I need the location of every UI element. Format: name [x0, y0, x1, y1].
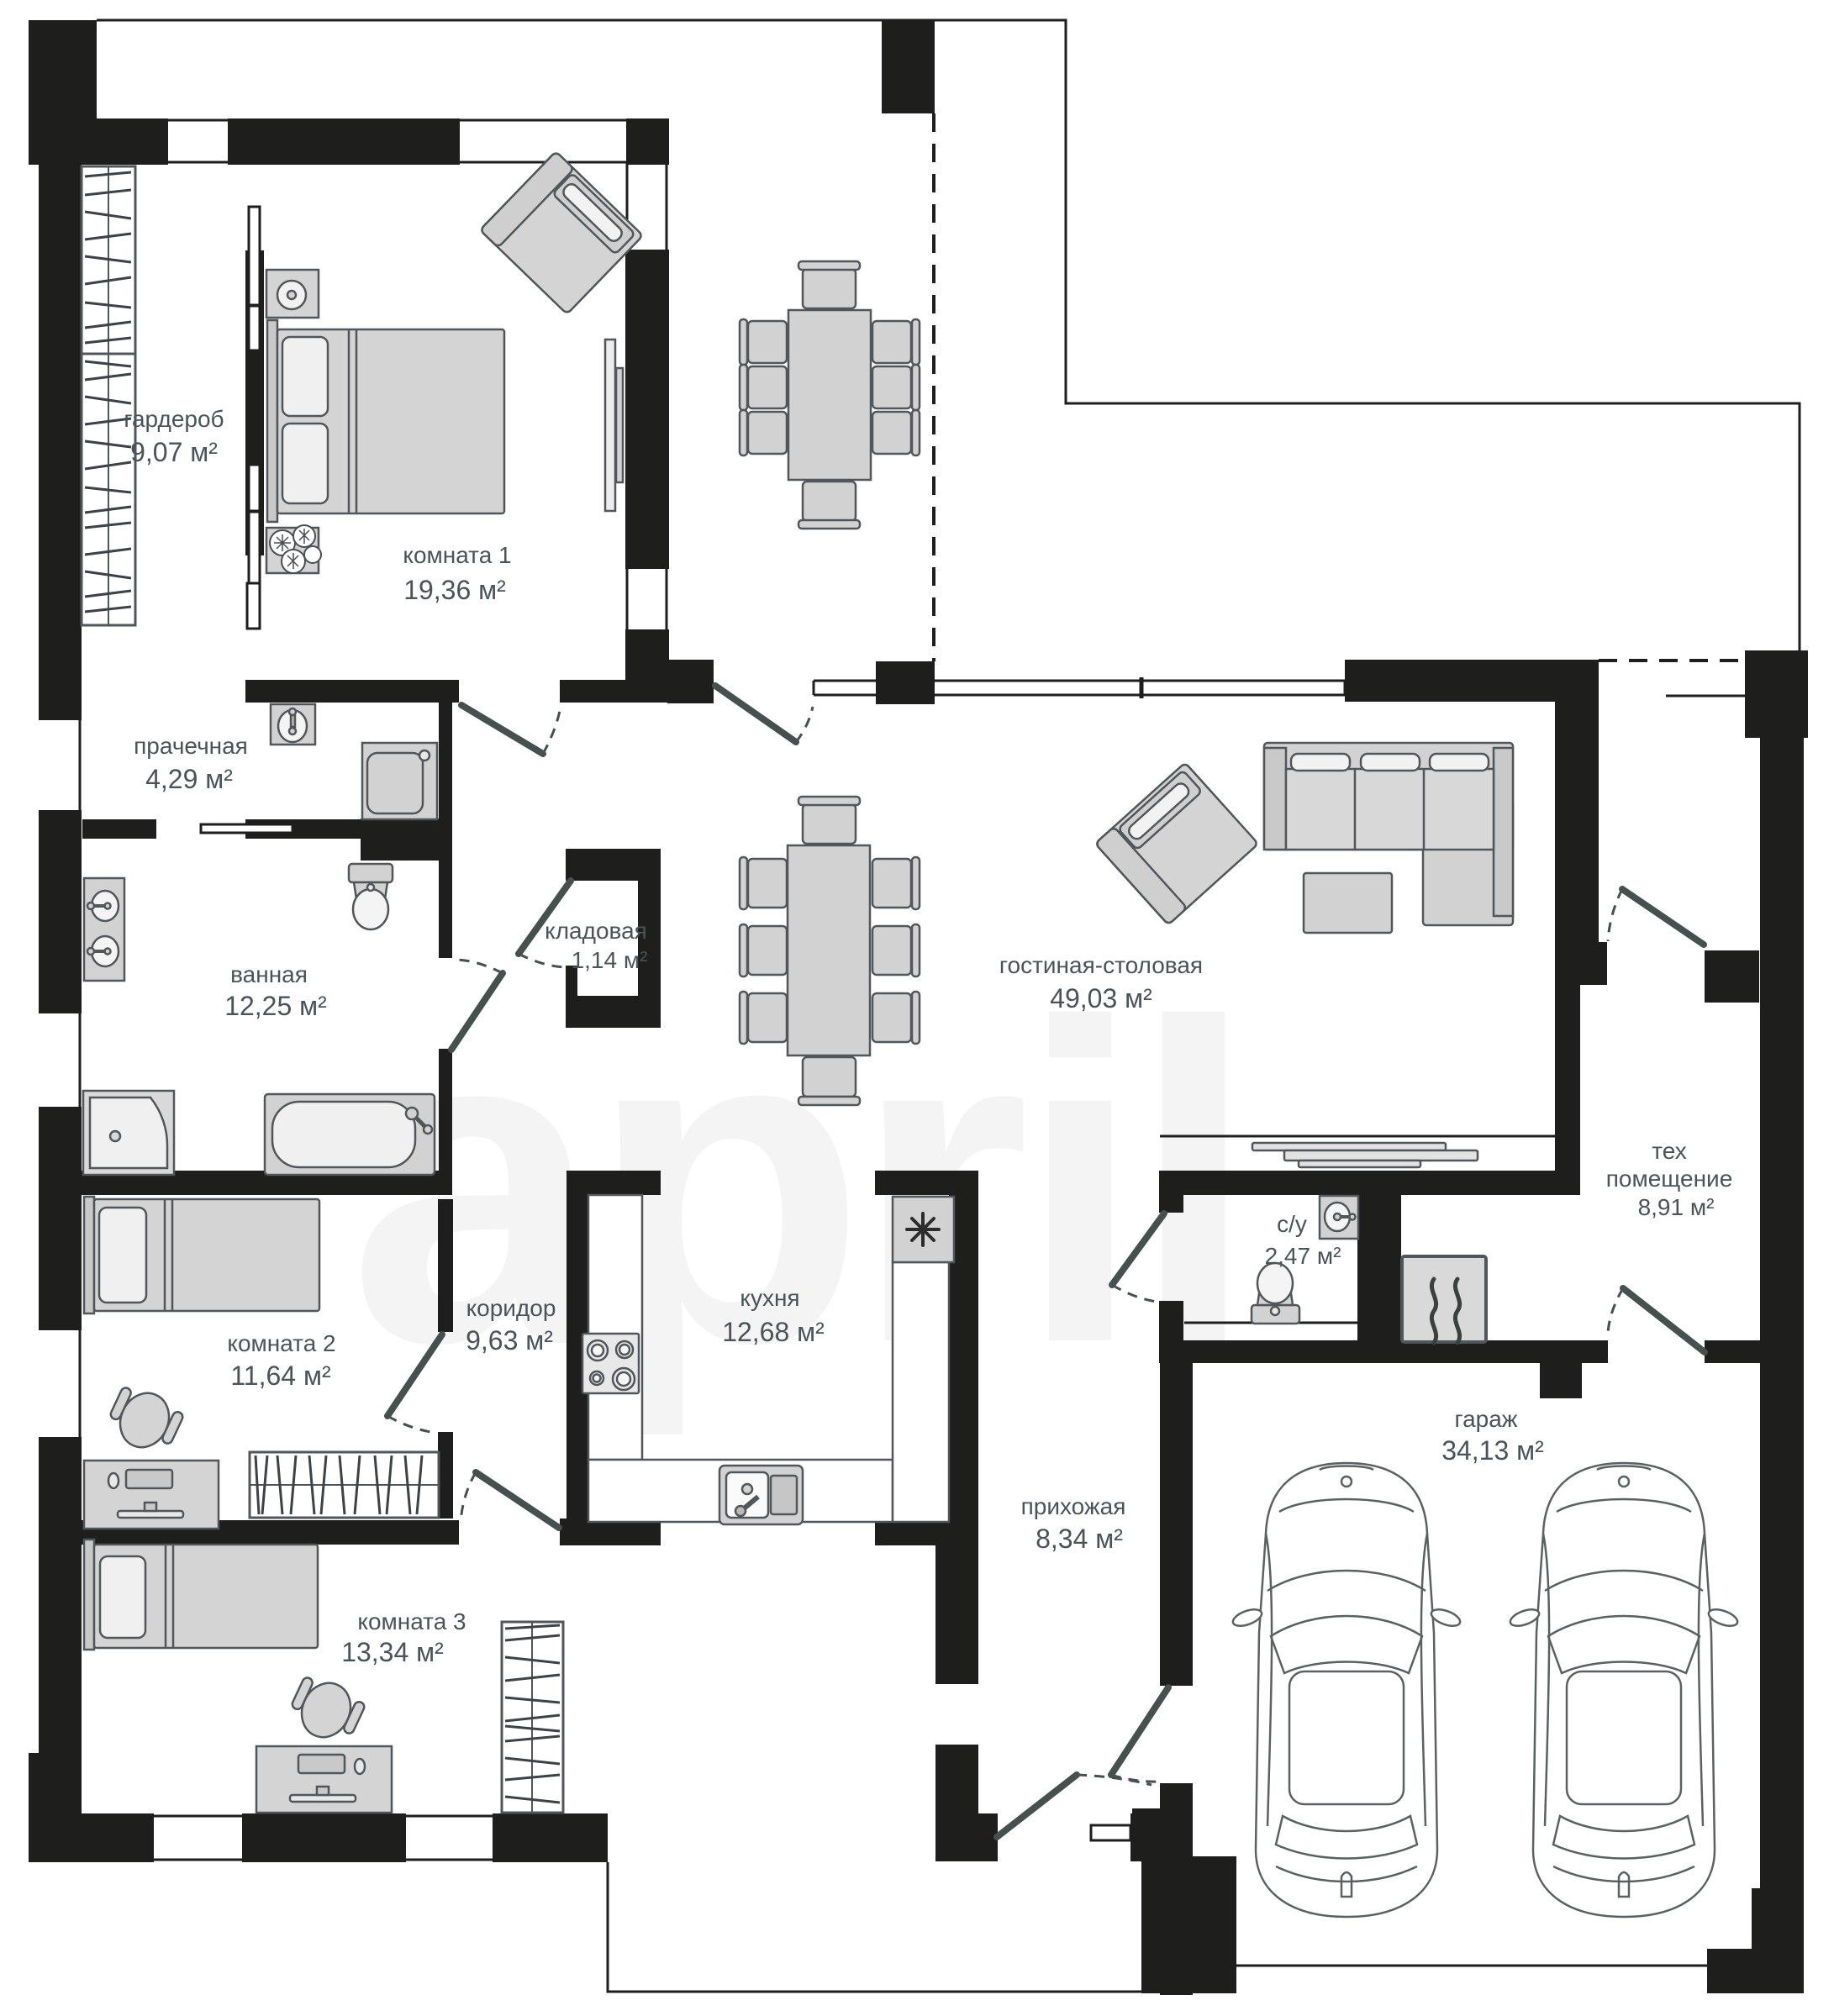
- svg-text:12,68 м²: 12,68 м²: [722, 1317, 825, 1347]
- svg-text:19,36 м²: 19,36 м²: [403, 575, 506, 605]
- svg-text:ванная: ванная: [230, 961, 308, 987]
- svg-text:2,47 м²: 2,47 м²: [1265, 1243, 1341, 1269]
- svg-text:гостиная-столовая: гостиная-столовая: [999, 952, 1203, 978]
- svg-text:8,34 м²: 8,34 м²: [1036, 1524, 1123, 1554]
- svg-text:прачечная: прачечная: [134, 733, 248, 759]
- svg-text:34,13 м²: 34,13 м²: [1441, 1435, 1544, 1466]
- svg-text:12,25 м²: 12,25 м²: [224, 991, 327, 1021]
- svg-text:9,63 м²: 9,63 м²: [466, 1325, 553, 1355]
- svg-text:с/у: с/у: [1277, 1211, 1307, 1237]
- svg-text:прихожая: прихожая: [1021, 1493, 1126, 1519]
- svg-text:гардероб: гардероб: [124, 406, 224, 432]
- svg-text:1,14 м²: 1,14 м²: [572, 947, 648, 973]
- svg-text:гараж: гараж: [1454, 1406, 1517, 1432]
- svg-text:4,29 м²: 4,29 м²: [145, 764, 233, 794]
- svg-text:комната 1: комната 1: [403, 542, 511, 568]
- svg-text:коридор: коридор: [466, 1295, 556, 1321]
- svg-text:9,07 м²: 9,07 м²: [130, 437, 218, 467]
- svg-text:комната 2: комната 2: [227, 1330, 335, 1356]
- svg-text:49,03 м²: 49,03 м²: [1050, 983, 1152, 1013]
- svg-text:11,64 м²: 11,64 м²: [230, 1361, 331, 1391]
- svg-text:тех: тех: [1652, 1138, 1686, 1164]
- svg-text:13,34 м²: 13,34 м²: [341, 1637, 444, 1667]
- svg-text:помещение: помещение: [1606, 1166, 1733, 1192]
- svg-text:комната 3: комната 3: [357, 1608, 466, 1634]
- svg-text:8,91 м²: 8,91 м²: [1638, 1194, 1715, 1220]
- svg-text:кладовая: кладовая: [545, 918, 647, 944]
- svg-text:кухня: кухня: [740, 1285, 799, 1311]
